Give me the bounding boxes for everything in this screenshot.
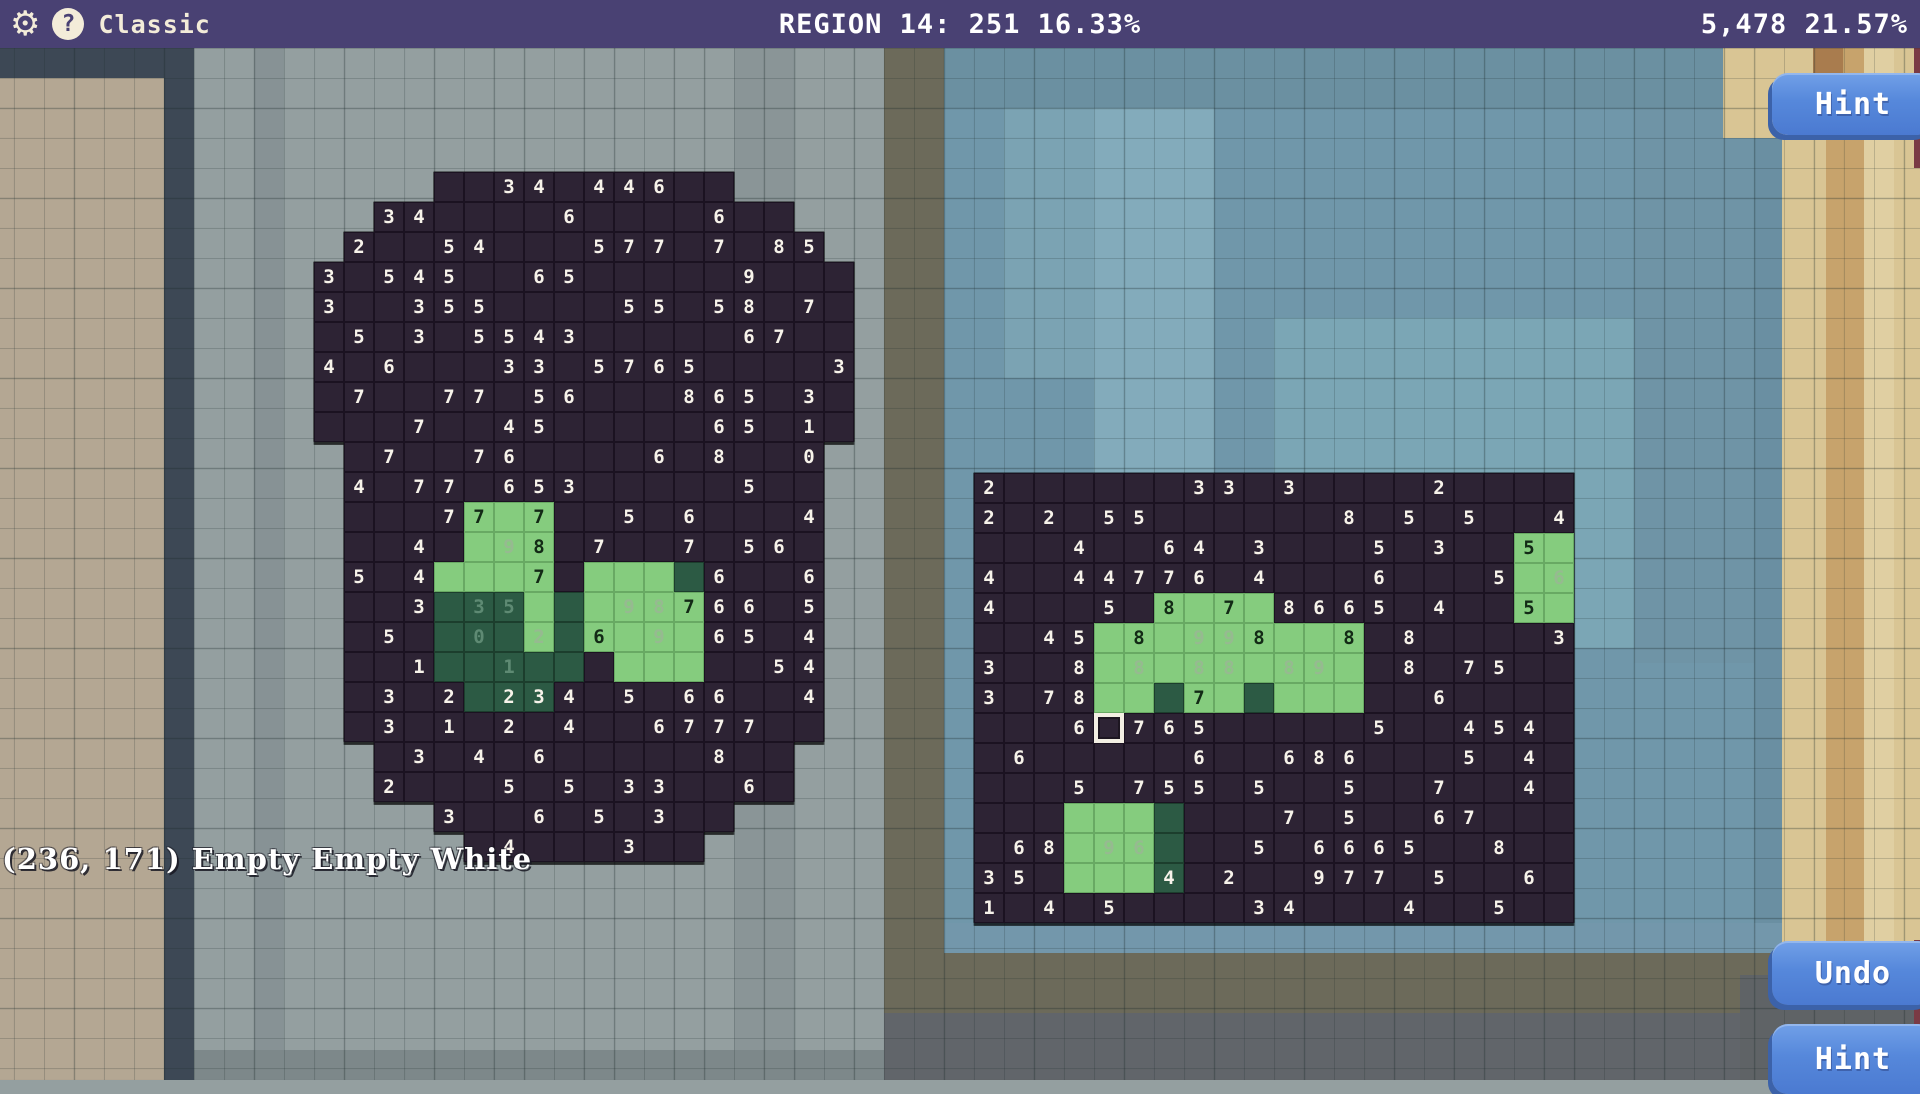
puzzle-cell[interactable]: 4 (1244, 563, 1274, 593)
puzzle-cell[interactable]: 4 (1514, 743, 1544, 773)
puzzle-cell[interactable]: 7 (434, 472, 464, 502)
puzzle-cell[interactable]: 3 (524, 682, 554, 712)
puzzle-cell[interactable] (1244, 593, 1274, 623)
puzzle-cell[interactable]: 5 (434, 232, 464, 262)
puzzle-cell[interactable] (974, 773, 1004, 803)
puzzle-cell[interactable] (614, 562, 644, 592)
puzzle-cell[interactable]: 4 (1454, 713, 1484, 743)
puzzle-cell[interactable] (764, 502, 794, 532)
puzzle-cell[interactable]: 4 (554, 712, 584, 742)
puzzle-cell[interactable] (584, 472, 614, 502)
puzzle-cell[interactable]: 1 (974, 893, 1004, 923)
puzzle-cell[interactable] (584, 562, 614, 592)
puzzle-cell[interactable]: 0 (794, 442, 824, 472)
puzzle-cell[interactable] (1064, 593, 1094, 623)
puzzle-cell[interactable] (1004, 473, 1034, 503)
puzzle-cell[interactable] (524, 652, 554, 682)
puzzle-cell[interactable] (1304, 803, 1334, 833)
puzzle-cell[interactable] (434, 202, 464, 232)
puzzle-cell[interactable]: 4 (314, 352, 344, 382)
puzzle-cell[interactable] (674, 802, 704, 832)
puzzle-cell[interactable] (1394, 563, 1424, 593)
puzzle-cell[interactable] (1304, 503, 1334, 533)
puzzle-cell[interactable]: 6 (704, 202, 734, 232)
puzzle-cell[interactable] (1274, 683, 1304, 713)
puzzle-cell[interactable] (374, 562, 404, 592)
puzzle-cell[interactable]: 6 (494, 472, 524, 502)
puzzle-cell[interactable] (1364, 683, 1394, 713)
puzzle-cell[interactable] (494, 292, 524, 322)
puzzle-cell[interactable]: 8 (1064, 653, 1094, 683)
puzzle-cell[interactable]: 5 (584, 802, 614, 832)
puzzle-cell[interactable]: 6 (1514, 863, 1544, 893)
puzzle-cell[interactable] (1034, 713, 1064, 743)
puzzle-cell[interactable]: 5 (1394, 833, 1424, 863)
puzzle-cell[interactable]: 6 (1334, 833, 1364, 863)
puzzle-cell[interactable]: 5 (1484, 713, 1514, 743)
puzzle-cell[interactable] (1034, 533, 1064, 563)
puzzle-cell[interactable]: 2 (1034, 503, 1064, 533)
puzzle-cell[interactable] (374, 742, 404, 772)
puzzle-cell[interactable] (1064, 893, 1094, 923)
puzzle-cell[interactable] (1274, 863, 1304, 893)
puzzle-cell[interactable] (674, 322, 704, 352)
puzzle-cell[interactable] (674, 472, 704, 502)
puzzle-cell[interactable] (644, 682, 674, 712)
puzzle-cell[interactable] (1004, 713, 1034, 743)
selected-cell[interactable] (1094, 713, 1124, 743)
puzzle-cell[interactable]: 3 (494, 352, 524, 382)
puzzle-cell[interactable] (1334, 893, 1364, 923)
puzzle-cell[interactable]: 8 (734, 292, 764, 322)
puzzle-cell[interactable] (644, 472, 674, 502)
puzzle-cell[interactable]: 3 (1244, 533, 1274, 563)
puzzle-cell[interactable] (584, 262, 614, 292)
puzzle-cell[interactable] (1364, 773, 1394, 803)
puzzle-cell[interactable] (1544, 773, 1574, 803)
puzzle-cell[interactable]: 9 (614, 592, 644, 622)
puzzle-cell[interactable] (734, 562, 764, 592)
puzzle-cell[interactable] (554, 502, 584, 532)
puzzle-cell[interactable] (374, 472, 404, 502)
puzzle-cell[interactable] (1454, 683, 1484, 713)
puzzle-cell[interactable] (524, 442, 554, 472)
puzzle-cell[interactable] (734, 232, 764, 262)
puzzle-cell[interactable] (1334, 563, 1364, 593)
puzzle-cell[interactable] (1004, 683, 1034, 713)
puzzle-cell[interactable] (1034, 863, 1064, 893)
puzzle-cell[interactable] (1394, 593, 1424, 623)
puzzle-cell[interactable] (614, 472, 644, 502)
puzzle-cell[interactable]: 5 (374, 622, 404, 652)
puzzle-cell[interactable] (464, 412, 494, 442)
puzzle-cell[interactable] (494, 562, 524, 592)
puzzle-cell[interactable]: 8 (1304, 743, 1334, 773)
puzzle-cell[interactable] (1304, 683, 1334, 713)
puzzle-cell[interactable]: 5 (1184, 773, 1214, 803)
puzzle-cell[interactable]: 6 (1064, 713, 1094, 743)
puzzle-cell[interactable] (674, 652, 704, 682)
puzzle-cell[interactable] (344, 592, 374, 622)
puzzle-cell[interactable]: 5 (734, 382, 764, 412)
puzzle-cell[interactable] (1364, 653, 1394, 683)
puzzle-cell[interactable] (1484, 773, 1514, 803)
puzzle-cell[interactable] (464, 262, 494, 292)
puzzle-cell[interactable]: 7 (614, 232, 644, 262)
puzzle-cell[interactable] (1544, 863, 1574, 893)
puzzle-cell[interactable] (584, 712, 614, 742)
puzzle-cell[interactable] (1514, 623, 1544, 653)
puzzle-cell[interactable] (374, 592, 404, 622)
puzzle-cell[interactable] (614, 412, 644, 442)
puzzle-cell[interactable] (704, 472, 734, 502)
puzzle-cell[interactable]: 7 (1154, 563, 1184, 593)
puzzle-cell[interactable] (464, 802, 494, 832)
puzzle-cell[interactable] (1454, 773, 1484, 803)
puzzle-cell[interactable] (584, 412, 614, 442)
puzzle-cell[interactable]: 4 (464, 232, 494, 262)
puzzle-cell[interactable] (344, 532, 374, 562)
puzzle-cell[interactable] (464, 172, 494, 202)
puzzle-cell[interactable]: 3 (374, 682, 404, 712)
puzzle-cell[interactable] (1274, 533, 1304, 563)
puzzle-cell[interactable] (1184, 863, 1214, 893)
puzzle-cell[interactable] (494, 262, 524, 292)
puzzle-cell[interactable]: 8 (1334, 623, 1364, 653)
puzzle-cell[interactable] (1154, 623, 1184, 653)
puzzle-cell[interactable] (1304, 713, 1334, 743)
puzzle-cell[interactable] (1364, 473, 1394, 503)
puzzle-cell[interactable]: 7 (404, 412, 434, 442)
puzzle-cell[interactable]: 8 (644, 592, 674, 622)
puzzle-cell[interactable] (974, 803, 1004, 833)
puzzle-cell[interactable]: 8 (1334, 503, 1364, 533)
puzzle-cell[interactable]: 9 (644, 622, 674, 652)
puzzle-cell[interactable] (344, 412, 374, 442)
undo-button[interactable]: Undo (1772, 941, 1920, 1005)
puzzle-cell[interactable]: 6 (674, 682, 704, 712)
puzzle-cell[interactable] (704, 262, 734, 292)
puzzle-cell[interactable]: 5 (1394, 503, 1424, 533)
puzzle-cell[interactable]: 6 (524, 262, 554, 292)
puzzle-cell[interactable] (1124, 893, 1154, 923)
puzzle-cell[interactable]: 7 (1124, 563, 1154, 593)
puzzle-cell[interactable] (1244, 743, 1274, 773)
puzzle-cell[interactable]: 5 (1334, 803, 1364, 833)
puzzle-cell[interactable]: 4 (1064, 533, 1094, 563)
puzzle-cell[interactable] (764, 682, 794, 712)
puzzle-cell[interactable]: 4 (794, 682, 824, 712)
puzzle-cell[interactable] (1274, 833, 1304, 863)
puzzle-cell[interactable]: 5 (1514, 533, 1544, 563)
puzzle-cell[interactable]: 5 (734, 622, 764, 652)
puzzle-cell[interactable] (1154, 653, 1184, 683)
puzzle-cell[interactable] (764, 622, 794, 652)
puzzle-cell[interactable]: 8 (704, 442, 734, 472)
puzzle-cell[interactable]: 5 (734, 532, 764, 562)
puzzle-cell[interactable]: 8 (674, 382, 704, 412)
puzzle-cell[interactable]: 7 (1124, 773, 1154, 803)
puzzle-cell[interactable] (554, 232, 584, 262)
puzzle-cell[interactable]: 2 (434, 682, 464, 712)
puzzle-cell[interactable]: 1 (434, 712, 464, 742)
puzzle-cell[interactable]: 5 (1244, 773, 1274, 803)
puzzle-cell[interactable]: 8 (1124, 653, 1154, 683)
puzzle-cell[interactable]: 5 (524, 382, 554, 412)
puzzle-cell[interactable]: 6 (1004, 833, 1034, 863)
puzzle-cell[interactable]: 3 (1244, 893, 1274, 923)
puzzle-cell[interactable]: 6 (1334, 743, 1364, 773)
puzzle-cell[interactable] (1484, 533, 1514, 563)
puzzle-cell[interactable]: 5 (494, 592, 524, 622)
puzzle-cell[interactable] (554, 562, 584, 592)
puzzle-cell[interactable] (674, 832, 704, 862)
puzzle-cell[interactable]: 4 (464, 742, 494, 772)
puzzle-cell[interactable] (314, 382, 344, 412)
puzzle-cell[interactable]: 4 (1034, 893, 1064, 923)
puzzle-cell[interactable] (1424, 623, 1454, 653)
puzzle-cell[interactable] (1004, 593, 1034, 623)
puzzle-cell[interactable]: 6 (704, 592, 734, 622)
puzzle-cell[interactable] (704, 502, 734, 532)
puzzle-cell[interactable] (614, 532, 644, 562)
puzzle-cell[interactable] (1124, 743, 1154, 773)
puzzle-cell[interactable] (794, 472, 824, 502)
puzzle-cell[interactable] (1544, 803, 1574, 833)
puzzle-cell[interactable] (1004, 533, 1034, 563)
puzzle-cell[interactable]: 3 (404, 322, 434, 352)
puzzle-cell[interactable] (1274, 563, 1304, 593)
puzzle-cell[interactable]: 9 (494, 532, 524, 562)
puzzle-cell[interactable] (1034, 773, 1064, 803)
puzzle-cell[interactable] (1514, 503, 1544, 533)
puzzle-cell[interactable] (1274, 713, 1304, 743)
puzzle-cell[interactable]: 5 (734, 412, 764, 442)
puzzle-cell[interactable] (1124, 593, 1154, 623)
puzzle-cell[interactable] (1304, 563, 1334, 593)
puzzle-cell[interactable] (704, 322, 734, 352)
puzzle-cell[interactable]: 2 (494, 682, 524, 712)
puzzle-cell[interactable]: 6 (1124, 833, 1154, 863)
puzzle-cell[interactable] (1484, 473, 1514, 503)
puzzle-cell[interactable] (1064, 863, 1094, 893)
puzzle-cell[interactable] (1514, 653, 1544, 683)
puzzle-cell[interactable] (1004, 623, 1034, 653)
puzzle-cell[interactable]: 6 (644, 442, 674, 472)
puzzle-cell[interactable] (1304, 773, 1334, 803)
puzzle-cell[interactable]: 7 (644, 232, 674, 262)
puzzle-cell[interactable]: 1 (794, 412, 824, 442)
puzzle-cell[interactable]: 3 (314, 292, 344, 322)
puzzle-cell[interactable] (554, 352, 584, 382)
puzzle-cell[interactable]: 9 (1094, 833, 1124, 863)
puzzle-cell[interactable] (1094, 743, 1124, 773)
puzzle-cell[interactable]: 6 (674, 502, 704, 532)
puzzle-cell[interactable]: 7 (1454, 653, 1484, 683)
puzzle-cell[interactable]: 5 (794, 592, 824, 622)
puzzle-cell[interactable] (1304, 533, 1334, 563)
puzzle-cell[interactable]: 3 (524, 352, 554, 382)
puzzle-cell[interactable] (434, 562, 464, 592)
puzzle-cell[interactable] (554, 652, 584, 682)
puzzle-cell[interactable] (764, 472, 794, 502)
puzzle-cell[interactable] (614, 382, 644, 412)
puzzle-cell[interactable] (1004, 803, 1034, 833)
puzzle-cell[interactable]: 6 (704, 382, 734, 412)
puzzle-cell[interactable] (1274, 623, 1304, 653)
puzzle-cell[interactable]: 7 (524, 502, 554, 532)
puzzle-cell[interactable]: 3 (404, 592, 434, 622)
puzzle-cell[interactable]: 6 (704, 412, 734, 442)
puzzle-cell[interactable] (464, 712, 494, 742)
puzzle-cell[interactable]: 8 (524, 532, 554, 562)
puzzle-cell[interactable] (554, 442, 584, 472)
puzzle-cell[interactable]: 6 (494, 442, 524, 472)
puzzle-cell[interactable] (584, 742, 614, 772)
puzzle-cell[interactable] (1334, 473, 1364, 503)
puzzle-cell[interactable] (404, 682, 434, 712)
puzzle-cell[interactable]: 9 (1304, 653, 1334, 683)
puzzle-cell[interactable] (584, 682, 614, 712)
puzzle-cell[interactable] (584, 832, 614, 862)
puzzle-cell[interactable] (1484, 803, 1514, 833)
puzzle-cell[interactable]: 5 (434, 292, 464, 322)
puzzle-cell[interactable]: 5 (734, 472, 764, 502)
puzzle-cell[interactable] (704, 352, 734, 382)
puzzle-cell[interactable] (434, 442, 464, 472)
puzzle-cell[interactable] (1094, 623, 1124, 653)
puzzle-cell[interactable] (974, 833, 1004, 863)
puzzle-cell[interactable] (1544, 833, 1574, 863)
puzzle-cell[interactable]: 5 (1514, 593, 1544, 623)
puzzle-cell[interactable]: 4 (524, 322, 554, 352)
puzzle-cell[interactable] (1064, 833, 1094, 863)
puzzle-cell[interactable]: 4 (554, 682, 584, 712)
puzzle-cell[interactable]: 4 (794, 652, 824, 682)
puzzle-cell[interactable] (464, 202, 494, 232)
puzzle-cell[interactable]: 2 (524, 622, 554, 652)
puzzle-cell[interactable]: 7 (704, 712, 734, 742)
puzzle-cell[interactable] (1424, 713, 1454, 743)
puzzle-cell[interactable] (1424, 893, 1454, 923)
puzzle-cell[interactable] (1184, 833, 1214, 863)
puzzle-cell[interactable]: 5 (344, 562, 374, 592)
puzzle-cell[interactable] (1214, 773, 1244, 803)
puzzle-cell[interactable] (764, 712, 794, 742)
puzzle-cell[interactable] (1124, 473, 1154, 503)
puzzle-cell[interactable]: 1 (494, 652, 524, 682)
puzzle-cell[interactable] (494, 232, 524, 262)
puzzle-cell[interactable] (524, 202, 554, 232)
puzzle-cell[interactable]: 6 (734, 322, 764, 352)
puzzle-cell[interactable] (1334, 683, 1364, 713)
puzzle-cell[interactable]: 2 (374, 772, 404, 802)
puzzle-cell[interactable] (1304, 893, 1334, 923)
puzzle-cell[interactable] (614, 802, 644, 832)
puzzle-cell[interactable] (464, 352, 494, 382)
puzzle-cell[interactable] (344, 682, 374, 712)
puzzle-cell[interactable] (974, 743, 1004, 773)
puzzle-cell[interactable] (1454, 533, 1484, 563)
puzzle-cell[interactable]: 0 (464, 622, 494, 652)
puzzle-cell[interactable] (1154, 893, 1184, 923)
puzzle-cell[interactable]: 5 (1454, 743, 1484, 773)
puzzle-cell[interactable]: 7 (1364, 863, 1394, 893)
puzzle-cell[interactable]: 6 (1364, 833, 1394, 863)
puzzle-cell[interactable]: 4 (974, 563, 1004, 593)
puzzle-cell[interactable]: 2 (974, 503, 1004, 533)
puzzle-cell[interactable]: 5 (674, 352, 704, 382)
puzzle-cell[interactable]: 6 (1304, 833, 1334, 863)
puzzle-cell[interactable] (464, 562, 494, 592)
puzzle-cell[interactable] (494, 202, 524, 232)
puzzle-cell[interactable] (1034, 473, 1064, 503)
puzzle-cell[interactable] (734, 352, 764, 382)
puzzle-cell[interactable] (344, 292, 374, 322)
puzzle-cell[interactable]: 2 (1424, 473, 1454, 503)
puzzle-cell[interactable] (704, 172, 734, 202)
puzzle-cell[interactable] (1514, 563, 1544, 593)
puzzle-cell[interactable] (614, 622, 644, 652)
puzzle-cell[interactable]: 6 (1364, 563, 1394, 593)
puzzle-cell[interactable] (1394, 743, 1424, 773)
puzzle-cell[interactable] (1394, 533, 1424, 563)
puzzle-cell[interactable]: 5 (1154, 773, 1184, 803)
puzzle-cell[interactable]: 7 (1274, 803, 1304, 833)
puzzle-cell[interactable] (344, 652, 374, 682)
puzzle-cell[interactable]: 4 (1274, 893, 1304, 923)
puzzle-cell[interactable]: 6 (1424, 683, 1454, 713)
puzzle-cell[interactable] (374, 502, 404, 532)
puzzle-cell[interactable] (374, 322, 404, 352)
puzzle-cell[interactable]: 5 (554, 262, 584, 292)
puzzle-cell[interactable] (1034, 593, 1064, 623)
puzzle-cell[interactable] (584, 322, 614, 352)
puzzle-cell[interactable]: 3 (554, 472, 584, 502)
puzzle-cell[interactable] (1514, 473, 1544, 503)
puzzle-cell[interactable]: 5 (434, 262, 464, 292)
puzzle-cell[interactable]: 4 (404, 562, 434, 592)
puzzle-cell[interactable] (1424, 503, 1454, 533)
puzzle-cell[interactable]: 5 (554, 772, 584, 802)
puzzle-cell[interactable] (554, 622, 584, 652)
puzzle-cell[interactable] (1094, 473, 1124, 503)
puzzle-cell[interactable]: 3 (614, 832, 644, 862)
puzzle-cell[interactable]: 5 (1094, 503, 1124, 533)
puzzle-cell[interactable] (1274, 503, 1304, 533)
puzzle-cell[interactable] (764, 772, 794, 802)
puzzle-cell[interactable] (614, 262, 644, 292)
puzzle-cell[interactable] (1544, 713, 1574, 743)
puzzle-cell[interactable] (1544, 653, 1574, 683)
right-puzzle-board[interactable]: 2333222558554464353544477646564587866545… (974, 473, 1574, 923)
puzzle-cell[interactable] (1244, 713, 1274, 743)
puzzle-cell[interactable]: 7 (464, 502, 494, 532)
puzzle-cell[interactable] (584, 772, 614, 802)
puzzle-cell[interactable]: 5 (1004, 863, 1034, 893)
puzzle-cell[interactable]: 7 (404, 472, 434, 502)
puzzle-cell[interactable]: 7 (464, 382, 494, 412)
puzzle-cell[interactable]: 7 (584, 532, 614, 562)
puzzle-cell[interactable] (1034, 803, 1064, 833)
puzzle-cell[interactable] (794, 532, 824, 562)
puzzle-cell[interactable] (674, 622, 704, 652)
puzzle-cell[interactable] (374, 292, 404, 322)
puzzle-cell[interactable]: 3 (494, 172, 524, 202)
puzzle-cell[interactable] (404, 442, 434, 472)
puzzle-cell[interactable] (554, 532, 584, 562)
puzzle-cell[interactable] (1454, 833, 1484, 863)
